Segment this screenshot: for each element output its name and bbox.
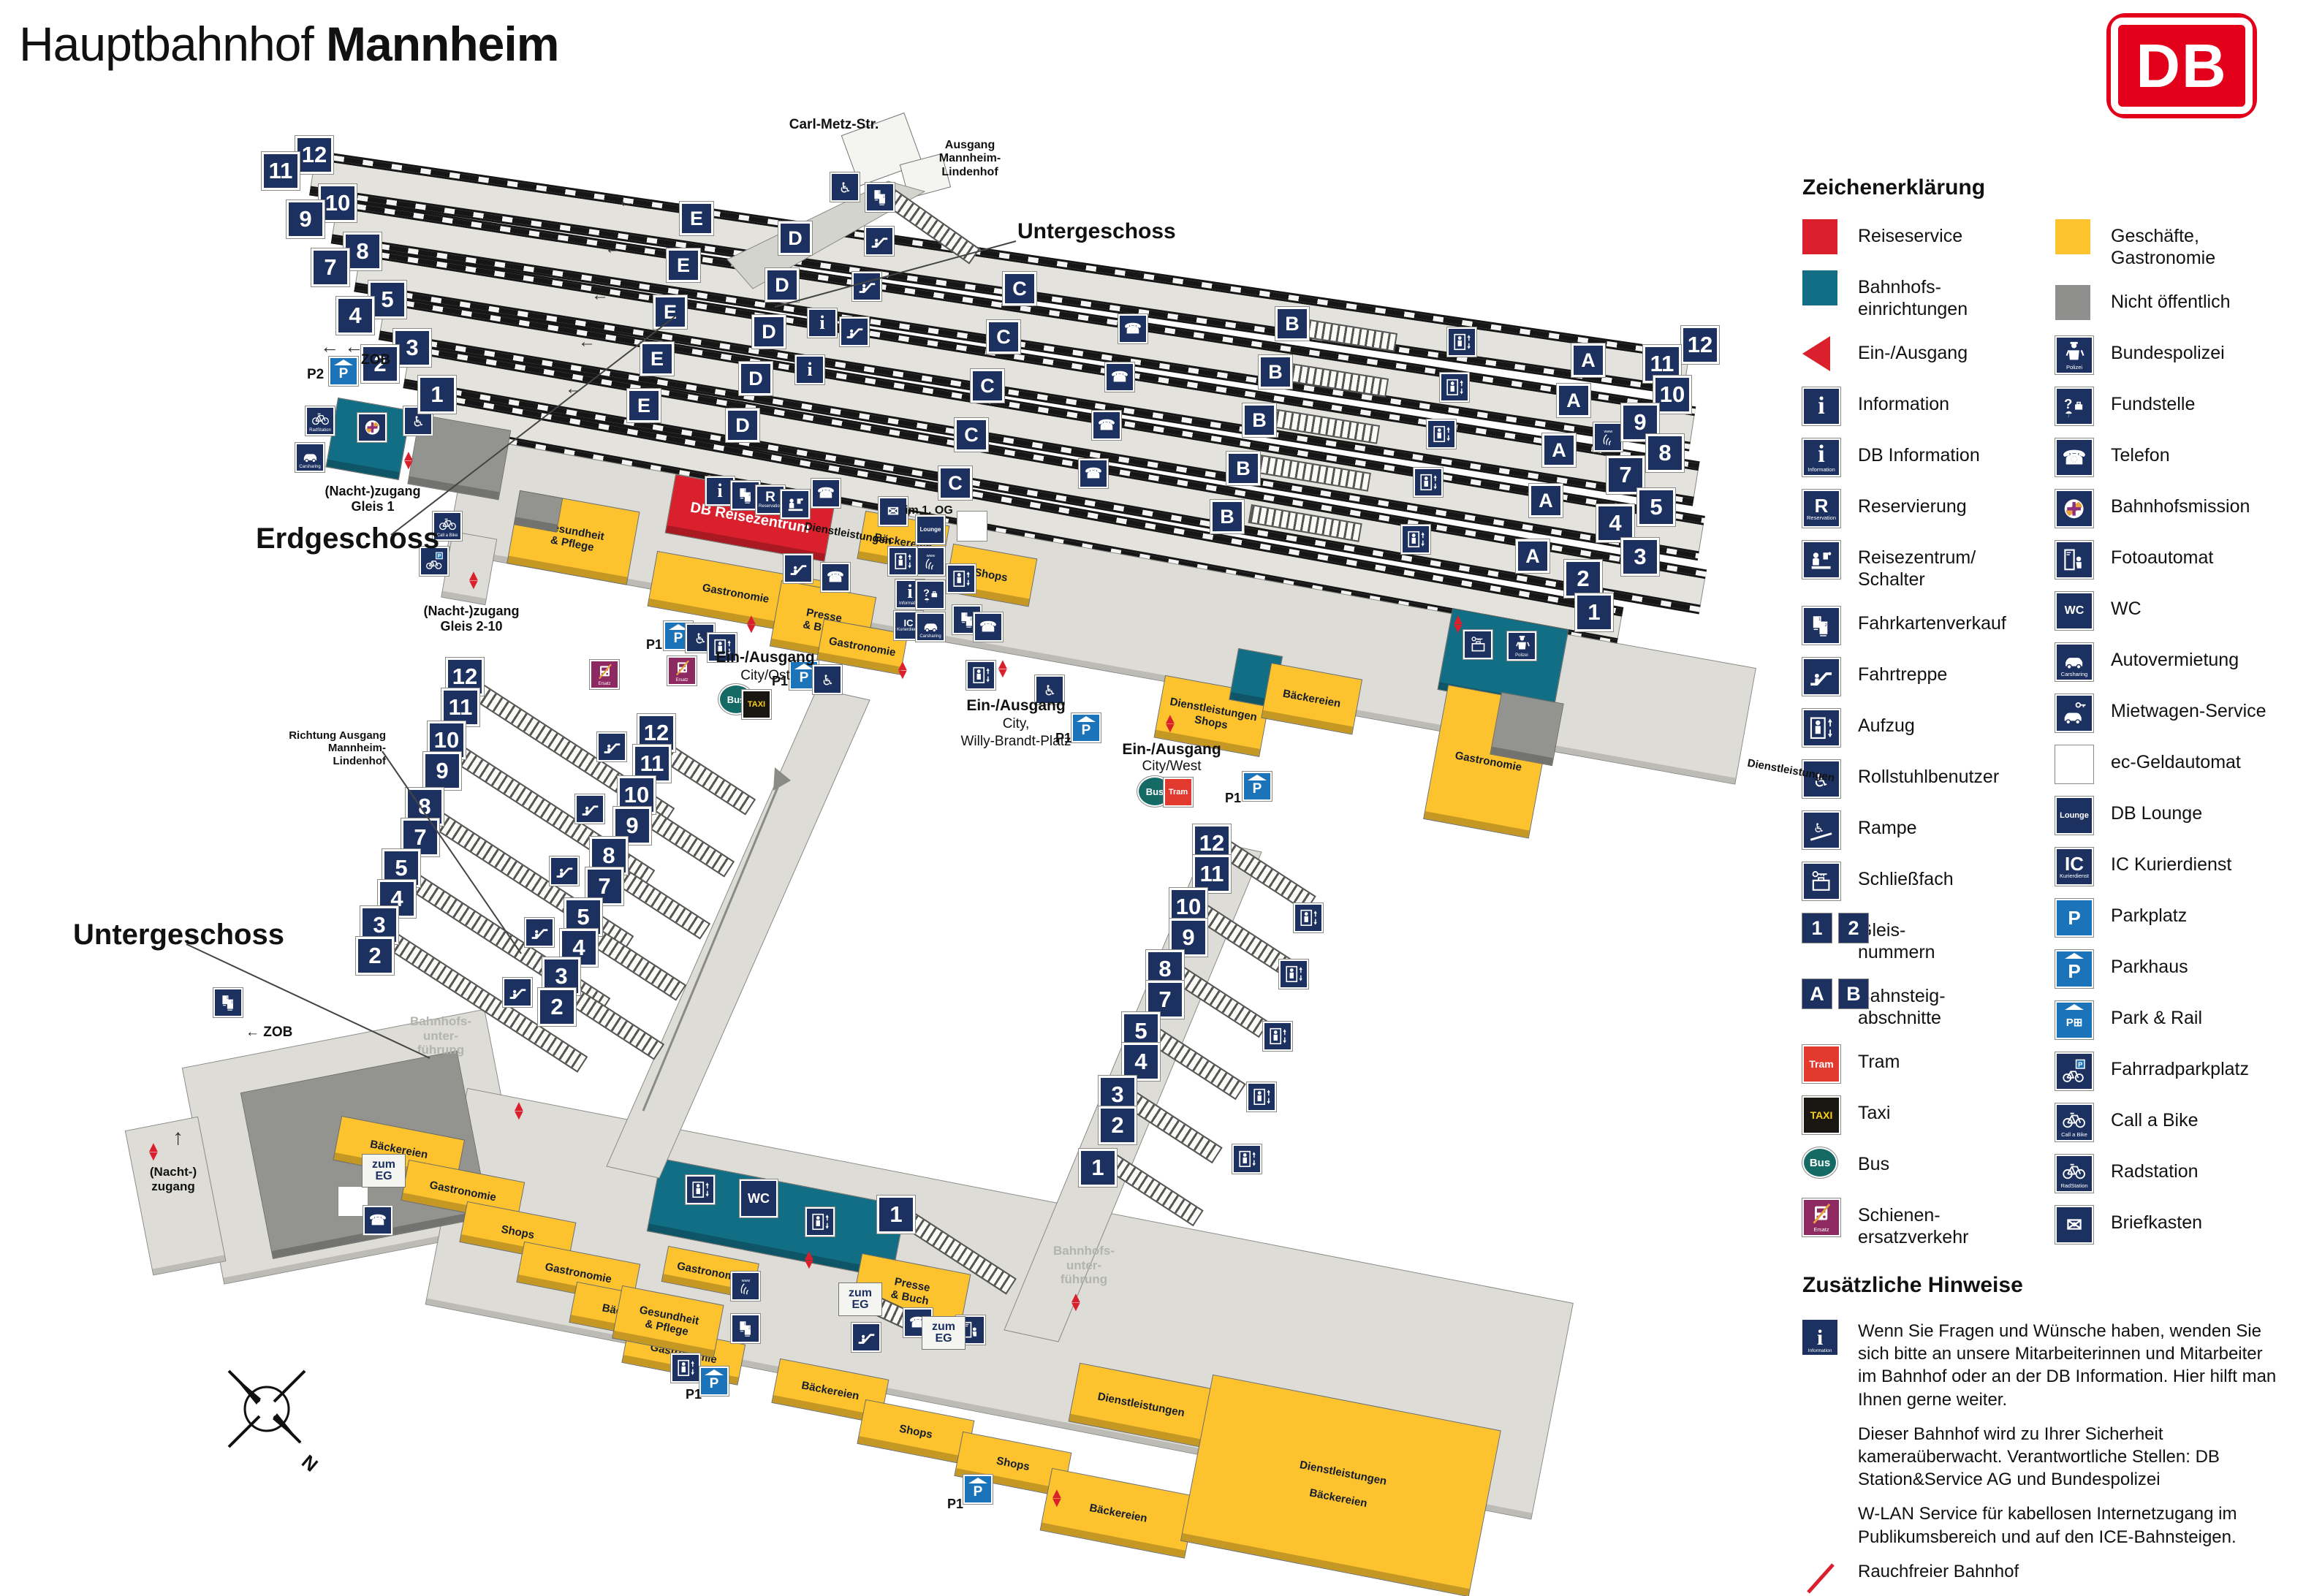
stairs <box>1171 965 1270 1038</box>
map-label: City/Ost <box>718 668 813 684</box>
legend-label: Fahrkartenverkauf <box>1858 607 2006 634</box>
entrance-arrow-icon: ▲▼ <box>1451 615 1465 634</box>
map-icon-tile: ☎ <box>1105 362 1134 392</box>
map-icon-glyph: Bus <box>1146 787 1164 797</box>
platform-number-chip: 11 <box>262 152 300 190</box>
legend-icon: Call a Bike <box>2055 1103 2090 1139</box>
platform-number-chip: 9 <box>423 752 461 790</box>
map-icon-tile: ☎ <box>974 612 1003 642</box>
map-icon-tile <box>1232 1144 1262 1174</box>
legend-row: Reiseservice <box>1802 219 2044 254</box>
map-label: City, <box>972 716 1060 732</box>
parkhaus-roof-icon <box>2065 953 2084 959</box>
map-icon <box>553 862 576 881</box>
map-icon-glyph: ☎ <box>1098 419 1115 433</box>
map-label: ← <box>578 332 596 352</box>
map-label: Untergeschoss <box>73 918 284 951</box>
legend-row: P⊞ Park & Rail <box>2055 1001 2296 1036</box>
map-icon-tile <box>852 272 881 301</box>
legend-label: DB Lounge <box>2111 797 2202 824</box>
legend-label: Parkplatz <box>2111 899 2187 927</box>
map-label: P1 <box>686 1387 702 1402</box>
map-icon-tile <box>840 317 869 346</box>
platform-number-chip: 2 <box>1099 1106 1137 1144</box>
legend-label: ec-Geldautomat <box>2111 745 2241 773</box>
note-icon <box>1802 1423 1837 1458</box>
map-icon-tile <box>597 732 626 761</box>
legend-row: Bahnhofs- einrichtungen <box>1802 270 2044 320</box>
map-icon <box>919 585 942 604</box>
note-text: Dieser Bahnhof wird zu Ihrer Sicherheit … <box>1858 1423 2285 1491</box>
legend-tile: i <box>1802 387 1840 425</box>
map-icon-tile <box>1401 525 1430 554</box>
legend-icon: P <box>2055 899 2090 934</box>
map-icon-glyph: R <box>765 490 775 504</box>
map-block <box>1491 693 1563 765</box>
platform-number-chip: 12 <box>1681 326 1719 364</box>
platform-number-chip: D <box>752 315 786 349</box>
entrance-arrow-icon: ▲▼ <box>1050 1489 1064 1508</box>
legend-label: IC Kurierdienst <box>2111 848 2231 875</box>
legend-row: P Parkplatz <box>2055 899 2296 934</box>
map-icon-caption: Polizei <box>1515 653 1528 658</box>
legend-icon: R Reservation <box>1802 490 1837 525</box>
map-icon <box>809 1212 832 1231</box>
legend-icon <box>1802 658 1837 693</box>
legend-label: Schließfach <box>1858 862 1954 890</box>
map-block-label: Shops <box>995 1455 1031 1474</box>
map-icon-tile <box>575 794 604 824</box>
legend-tile <box>2055 694 2093 732</box>
map-label: ← <box>591 285 609 305</box>
legend-label: Geschäfte, Gastronomie <box>2111 219 2215 269</box>
stairs <box>1194 902 1293 976</box>
platform-number-chip: B <box>1275 307 1309 341</box>
legend-row: AB Bahnsteig- abschnitte <box>1802 979 2044 1029</box>
entrance-arrow-icon: ▲▼ <box>466 571 481 590</box>
map-icon <box>919 615 942 634</box>
map-icon-caption: RadStation <box>309 428 331 433</box>
map-icon-glyph: P <box>710 1377 719 1391</box>
map-icon-tile <box>916 547 945 576</box>
legend-row: Polizei Bundespolizei <box>2055 336 2296 371</box>
legend-row: TAXI Taxi <box>1802 1096 2044 1131</box>
map-icon-glyph: P <box>1253 782 1262 796</box>
map-icon <box>1597 427 1620 446</box>
legend-icon: ec <box>2055 745 2090 780</box>
map-block-label: Presse & Buch <box>889 1275 932 1307</box>
map-icon-tile: Tram <box>1164 778 1193 807</box>
entrance-arrow-icon: ▲▼ <box>995 660 1010 678</box>
map-icon <box>1467 635 1490 654</box>
note-row: Dieser Bahnhof wird zu Ihrer Sicherheit … <box>1802 1423 2285 1491</box>
platform-number-chip: 9 <box>287 200 325 238</box>
map-icon-glyph: P <box>674 631 683 645</box>
map-icon-tile: Polizei <box>1507 631 1536 661</box>
parkhaus-roof-icon <box>2065 1004 2084 1010</box>
legend-row: Tram Tram <box>1802 1045 2044 1080</box>
legend-row: Nicht öffentlich <box>2055 285 2296 320</box>
map-icon <box>970 666 993 685</box>
legend-label: Information <box>1858 387 1949 415</box>
map-icon-glyph: i <box>907 582 912 601</box>
map-label: P1 <box>947 1497 963 1512</box>
map-icon-glyph: ec <box>966 519 979 533</box>
platform-number-chip: E <box>667 248 700 282</box>
legend-tile: Bus <box>1802 1147 1837 1178</box>
legend-label: DB Information <box>1858 438 1980 466</box>
legend-label: Tram <box>1858 1045 1900 1073</box>
legend-tile: Call a Bike <box>2055 1103 2093 1141</box>
map-label: ← <box>604 238 622 259</box>
map-icon <box>784 495 807 514</box>
platform-number-chip: 7 <box>311 248 349 286</box>
legend-row: Ersatz Schienen- ersatzverkehr <box>1802 1198 2044 1248</box>
legend-icon <box>2055 541 2090 576</box>
map-icon-tile: ☎ <box>1079 459 1108 488</box>
map-block-label: Gesundheit & Pflege <box>636 1304 700 1340</box>
legend-tile: P <box>2055 950 2093 988</box>
legend-label: Bahnhofsmission <box>2111 490 2250 517</box>
platform-number-chip: 2 <box>538 988 576 1026</box>
legend-label: Taxi <box>1858 1096 1890 1124</box>
note-icon <box>1802 1560 1837 1595</box>
map-label: ← <box>618 191 635 212</box>
legend-tile: WC <box>2055 592 2093 630</box>
map-block-label: Gastronomie <box>828 635 897 659</box>
map-icon-tile: ☎ <box>821 563 850 592</box>
legend-row: Bahnhofsmission <box>2055 490 2296 525</box>
legend-label: Briefkasten <box>2111 1206 2202 1234</box>
legend-tile: P⊞ <box>2055 1001 2093 1039</box>
legend-icon <box>1802 219 1837 254</box>
stairs <box>1218 839 1316 912</box>
map-icon <box>528 923 551 942</box>
entrance-arrow-icon: ▲▼ <box>146 1143 161 1161</box>
legend-label: Rampe <box>1858 811 1917 839</box>
map-icon-tile <box>813 665 842 694</box>
map-block <box>515 491 562 532</box>
map-icon-glyph: Tram <box>1169 788 1188 797</box>
map-label: Ein-/Ausgang <box>1117 741 1226 759</box>
map-label: ↑ <box>172 1125 183 1151</box>
platform-number-chip: 2 <box>356 937 394 975</box>
map-icon-glyph: P <box>974 1485 983 1499</box>
legend-tile: i Information <box>1802 438 1840 476</box>
map-icon-tile: TAXI <box>742 690 771 719</box>
legend-icon: Ersatz <box>1802 1198 1837 1234</box>
db-logo-text: DB <box>2136 31 2227 102</box>
legend-icon: i <box>1802 387 1837 422</box>
map-block-label: Shops <box>500 1223 535 1242</box>
map-icon <box>1236 1149 1259 1168</box>
parkhaus-roof-icon <box>334 360 353 365</box>
platform-number-chip: 1 <box>1575 593 1613 631</box>
map-icon-tile: i <box>705 476 735 506</box>
legend-row: R Reservation Reservierung <box>1802 490 2044 525</box>
legend-icon <box>2055 285 2090 320</box>
legend-row: Bus Bus <box>1802 1147 2044 1182</box>
map-icon-glyph: WC <box>748 1192 770 1205</box>
parkhaus-roof-icon <box>705 1369 724 1375</box>
map-label: Bahnhofs- unter- führung <box>1044 1244 1124 1287</box>
map-icon-tile: P <box>699 1367 729 1396</box>
legend-icon <box>2055 219 2090 254</box>
map-label: City/West <box>1124 759 1219 775</box>
map-icon-tile: i <box>808 308 837 338</box>
legend-icon <box>2055 387 2090 422</box>
platform-number-chip: A <box>1571 343 1605 377</box>
map-label: Untergeschoss <box>1017 219 1176 245</box>
map-icon-tile <box>686 1175 715 1204</box>
page-title: Hauptbahnhof Mannheim <box>19 16 558 72</box>
map-icon-tile <box>865 183 895 212</box>
map-block-label: Gastronomie <box>428 1179 497 1204</box>
map-label: P1 <box>1055 731 1071 746</box>
map-icon <box>601 737 623 756</box>
map-icon-caption: Reservation <box>759 504 782 509</box>
map-icon <box>1417 473 1440 492</box>
legend-tile <box>1802 658 1840 696</box>
map-icon-tile <box>784 554 813 583</box>
platform-number-chip: E <box>640 342 674 376</box>
notes-list: Wenn Sie Fragen und Wünsche haben, wende… <box>1802 1320 2285 1596</box>
map-icon-tile: i <box>795 355 824 384</box>
parkhaus-roof-icon <box>1077 716 1096 722</box>
legend-icon <box>1802 270 1837 305</box>
map-label: (Nacht-)zugang Gleis 2-10 <box>409 604 534 634</box>
legend-tile <box>2055 387 2093 425</box>
map-icon-glyph: P <box>339 367 349 381</box>
platform-number-chip: B <box>1243 403 1276 437</box>
map-icon-glyph: ✉ <box>887 505 899 519</box>
map-icon-tile: Lounge <box>916 515 945 544</box>
legend-row: Carsharing Autovermietung <box>2055 643 2296 678</box>
platform-number-chip: zum EG <box>839 1283 881 1315</box>
map-icon <box>855 1328 878 1347</box>
map-label: Ausgang Mannheim- Lindenhof <box>915 139 1025 179</box>
legend-row: Rollstuhlbenutzer <box>1802 760 2044 795</box>
legend-label: Parkhaus <box>2111 950 2188 978</box>
map-icon-tile: Ersatz <box>590 660 619 689</box>
legend-icon: RadStation <box>2055 1155 2090 1190</box>
map-icon-tile: ☎ <box>1092 411 1121 440</box>
map-label: ← ZOB <box>246 1025 292 1041</box>
map-icon-tile <box>1427 419 1456 449</box>
legend-icon: TAXI <box>1802 1096 1837 1131</box>
platform-number-chip: 1 <box>1079 1149 1117 1187</box>
map-icon <box>671 659 694 678</box>
legend-row: Fundstelle <box>2055 387 2296 422</box>
legend-row: Fahrtreppe <box>1802 658 2044 693</box>
map-icon-tile <box>1247 1082 1276 1111</box>
stairs <box>1124 1090 1223 1163</box>
legend-row: Geschäfte, Gastronomie <box>2055 219 2296 269</box>
map-icon <box>919 552 942 571</box>
map-icon-tile <box>671 1353 700 1383</box>
map-icon-tile: Carsharing <box>916 612 945 642</box>
legend-tile <box>1802 709 1840 747</box>
legend-tile: IC Kurierdienst <box>2055 848 2093 886</box>
entrance-arrow-icon: ▲▼ <box>1069 1293 1083 1312</box>
map-icon-glyph: i <box>819 313 824 332</box>
map-block-label: Shops <box>898 1423 933 1442</box>
legend-label: Fotoautomat <box>2111 541 2213 569</box>
platform-number-chip: 5 <box>1637 488 1675 526</box>
legend-tile: Carsharing <box>2055 643 2093 681</box>
legend-row: Reisezentrum/ Schalter <box>1802 541 2044 590</box>
map-block: Shops <box>858 1400 974 1464</box>
map-icon <box>869 188 892 207</box>
map-icon <box>407 411 430 430</box>
platform-number-chip: B <box>1210 500 1244 533</box>
map-label: Ein-/Ausgang <box>957 697 1074 715</box>
map-icon <box>217 993 240 1012</box>
legend-label: Fahrtreppe <box>1858 658 1947 685</box>
map-icon <box>787 559 810 578</box>
map-label: Erdgeschoss <box>256 522 439 555</box>
platform-number-chip: zum EG <box>363 1155 405 1187</box>
map-icon-glyph: i <box>717 482 722 501</box>
legend-icon <box>2055 1052 2090 1087</box>
map-label: ← ← <box>320 336 363 358</box>
map-icon-tile <box>830 172 860 202</box>
map-icon-tile <box>1294 903 1323 932</box>
legend-row: Rampe <box>1802 811 2044 846</box>
note-row: Rauchfreier Bahnhof <box>1802 1560 2285 1595</box>
map-icon-tile <box>550 856 579 886</box>
legend-label: Reservierung <box>1858 490 1967 517</box>
map-icon <box>1444 378 1466 397</box>
map-icon-tile <box>865 227 894 256</box>
map-icon-glyph: ☎ <box>817 487 835 501</box>
map-block-label: Bäckereien <box>1088 1502 1148 1525</box>
legend-icon <box>1802 607 1837 642</box>
platform-number-chip: 12 <box>295 136 333 174</box>
notes-heading: Zusätzliche Hinweise <box>1802 1273 2023 1298</box>
platform-number-chip: D <box>726 408 759 442</box>
legend-label: Bus <box>1858 1147 1889 1175</box>
legend-icon: Bus <box>1802 1147 1837 1182</box>
map-block-label: Dienstleistungen <box>1096 1391 1186 1420</box>
legend-label: Bahnhofs- einrichtungen <box>1858 270 1968 320</box>
map-icon <box>1451 332 1473 351</box>
legend-row: Fotoautomat <box>2055 541 2296 576</box>
map-icon-glyph: ☎ <box>369 1214 387 1228</box>
map-icon-tile: Ersatz <box>667 656 697 685</box>
legend-row: P Parkhaus <box>2055 950 2296 985</box>
legend-row: Aufzug <box>1802 709 2044 744</box>
map-icon-caption: Carsharing <box>299 465 320 470</box>
map-icon <box>735 486 757 505</box>
legend-icon <box>1802 709 1837 744</box>
legend-tile <box>1802 541 1840 579</box>
map-icon-glyph: ☎ <box>827 571 844 585</box>
legend-label: Park & Rail <box>2111 1001 2202 1029</box>
map-icon-caption: Ersatz <box>598 682 610 687</box>
legend-tile <box>2055 541 2093 579</box>
legend-icon <box>1802 336 1837 371</box>
note-row: Wenn Sie Fragen und Wünsche haben, wende… <box>1802 1320 2285 1411</box>
map-icon-tile: ☎ <box>1118 314 1147 343</box>
legend-icon <box>1802 541 1837 576</box>
map-label: (Nacht-) zugang <box>133 1165 213 1193</box>
platform-number-chip: C <box>987 320 1020 354</box>
legend-tile: ec <box>2055 745 2093 783</box>
platform-number-chip: C <box>955 418 988 452</box>
map-icon-tile <box>1593 422 1623 452</box>
legend-row: Fahrkartenverkauf <box>1802 607 2044 642</box>
legend-left-column: Reiseservice Bahnhofs- e <box>1802 219 2044 1264</box>
legend-icon: Carsharing <box>2055 643 2090 678</box>
map-icon-tile <box>888 547 917 576</box>
entrance-arrow-icon: ▲▼ <box>744 615 759 634</box>
map-icon-glyph: i <box>807 360 812 379</box>
map-icon <box>950 569 973 588</box>
platform-number-chip: E <box>627 389 661 422</box>
map-icon-tile <box>731 1272 760 1301</box>
map-block-label: Bäckereien <box>800 1380 860 1403</box>
legend-row: ☎ Telefon <box>2055 438 2296 474</box>
legend-label: Ein-/Ausgang <box>1858 336 1968 364</box>
note-icon <box>1802 1502 1837 1538</box>
map-icon-tile <box>1440 373 1469 402</box>
platform-number-chip: E <box>680 202 713 235</box>
map-icon-glyph: ☎ <box>979 620 997 634</box>
map-label: (Nacht-)zugang Gleis 1 <box>314 484 431 514</box>
legend-row: Call a Bike Call a Bike <box>2055 1103 2296 1139</box>
map-icon <box>735 1319 757 1338</box>
map-icon <box>1430 425 1453 444</box>
map-icon <box>1405 530 1427 549</box>
map-icon-tile <box>916 580 945 609</box>
legend-label: Autovermietung <box>2111 643 2239 671</box>
entrance-arrow-icon: ▲▼ <box>1163 715 1177 733</box>
map-icon-tile: ☎ <box>363 1206 392 1235</box>
map-icon-tile: ec <box>957 512 987 541</box>
map-icon-tile <box>525 918 554 947</box>
platform-number-chip: B <box>1259 355 1292 389</box>
db-logo: DB <box>2106 13 2257 118</box>
legend-row: i Information DB Information <box>1802 438 2044 474</box>
legend-swatch <box>2055 285 2090 320</box>
platform-number-chip: 1 <box>877 1196 915 1234</box>
legend-icon: i Information <box>1802 438 1837 474</box>
platform-number-chip: B <box>1226 452 1260 485</box>
legend-icon: Tram <box>1802 1045 1837 1080</box>
platform-number-chip: A <box>1516 539 1549 573</box>
legend-label: WC <box>2111 592 2142 620</box>
note-text: Rauchfreier Bahnhof <box>1858 1560 2019 1595</box>
legend-tile: RadStation <box>2055 1155 2093 1193</box>
entrance-arrow-icon: ▲▼ <box>895 661 910 680</box>
legend-tile <box>1802 607 1840 645</box>
legend-icon: Lounge <box>2055 797 2090 832</box>
map-icon <box>675 1358 697 1377</box>
map-icon-tile: ☎ <box>811 479 841 508</box>
legend-row: Schließfach <box>1802 862 2044 897</box>
note-text: Wenn Sie Fragen und Wünsche haben, wende… <box>1858 1320 2285 1411</box>
legend-row: RadStation Radstation <box>2055 1155 2296 1190</box>
legend-label: Mietwagen-Service <box>2111 694 2266 722</box>
platform-number-chip: D <box>778 221 812 255</box>
legend-label: Fundstelle <box>2111 387 2195 415</box>
legend-label: Bundespolizei <box>2111 336 2225 364</box>
parkhaus-roof-icon <box>968 1478 987 1483</box>
legend-label: Radstation <box>2111 1155 2199 1182</box>
platform-number-chip: 1 <box>418 376 456 414</box>
map-icon-glyph: P <box>1082 723 1091 737</box>
